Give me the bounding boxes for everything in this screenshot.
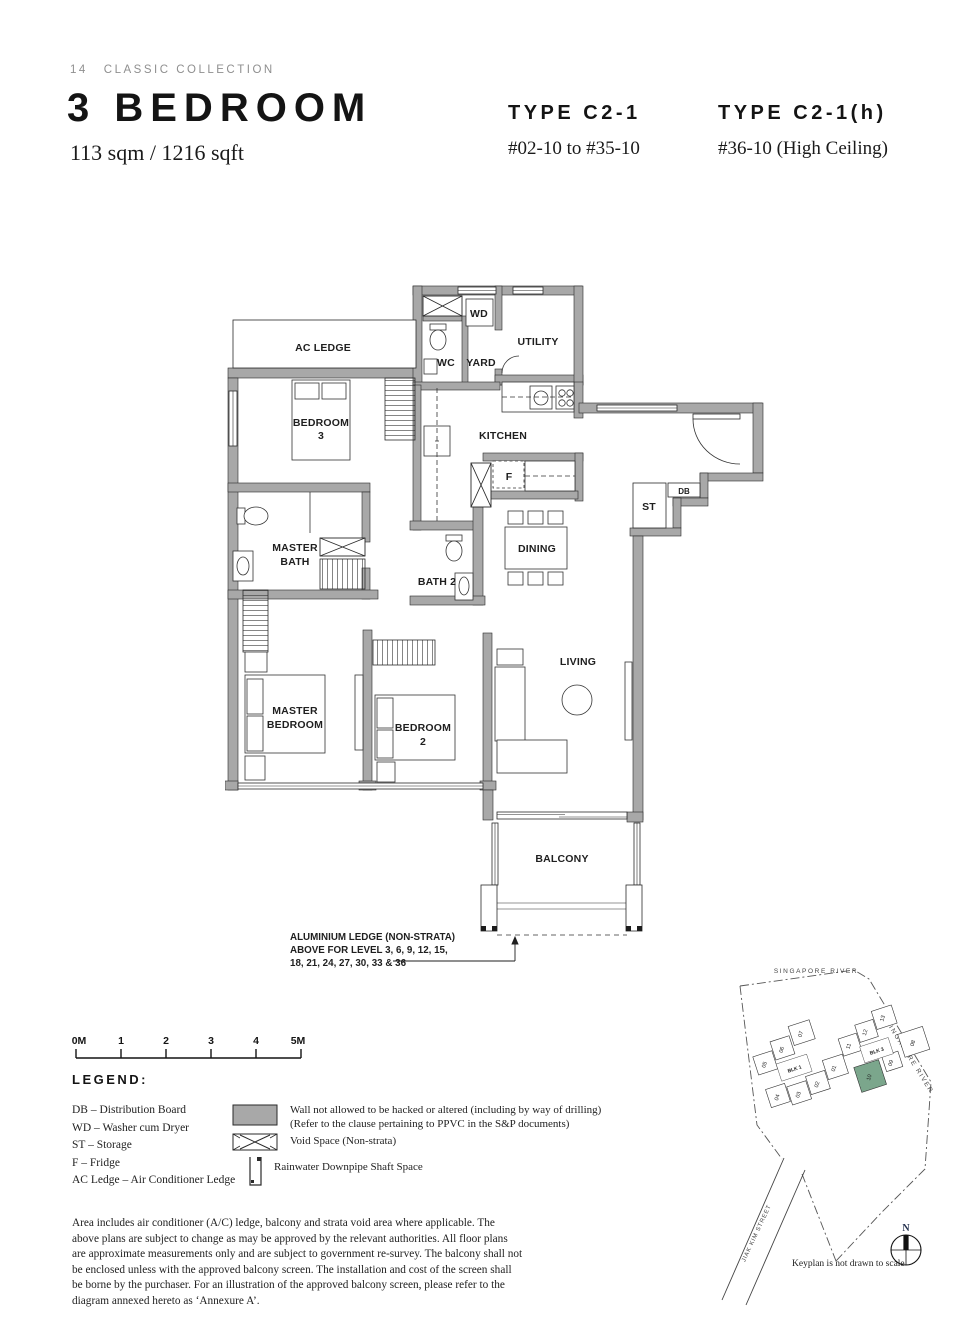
coffee-table — [562, 685, 592, 715]
legend-abbr-acledge: AC Ledge – Air Conditioner Ledge — [72, 1172, 235, 1189]
type-2-name: TYPE C2-1(h) — [718, 102, 887, 125]
void-space-text: Void Space (Non-strata) — [290, 1135, 396, 1149]
legend-rainwater-downpipe: Rainwater Downpipe Shaft Space — [248, 1153, 423, 1187]
singapore-river-label-top: SINGAPORE RIVER — [774, 968, 858, 975]
label-master-bedroom-2: BEDROOM — [267, 719, 323, 731]
jiak-kim-street-road — [722, 1158, 805, 1305]
aluminium-ledge-note-2: ABOVE FOR LEVEL 3, 6, 9, 12, 15, — [290, 945, 448, 956]
type-1-name: TYPE C2-1 — [508, 102, 641, 125]
void-space-swatch — [232, 1133, 278, 1151]
scale-tick-2: 2 — [163, 1035, 169, 1047]
tv-console — [625, 662, 632, 740]
aluminium-ledge-note-1: ALUMINIUM LEDGE (NON-STRATA) — [290, 932, 455, 943]
label-bedroom2-2: 2 — [420, 736, 426, 748]
sofa — [495, 667, 525, 741]
label-bedroom2-1: BEDROOM — [395, 722, 451, 734]
disclaimer-text: Area includes air conditioner (A/C) ledg… — [72, 1216, 524, 1309]
legend-abbr-f: F – Fridge — [72, 1155, 235, 1172]
scale-tick-1: 1 — [118, 1035, 124, 1047]
rainwater-downpipe-swatch — [248, 1153, 264, 1187]
restricted-wall-text-1: Wall not allowed to be hacked or altered… — [290, 1104, 601, 1118]
compass-north-label: N — [902, 1223, 910, 1234]
scale-tick-3: 3 — [208, 1035, 214, 1047]
north-needle — [903, 1235, 908, 1250]
label-living: LIVING — [560, 656, 596, 668]
legend-void-space: Void Space (Non-strata) — [232, 1133, 396, 1151]
legend-restricted-wall: Wall not allowed to be hacked or altered… — [232, 1104, 601, 1131]
restricted-wall-text-2: (Refer to the clause pertaining to PPVC … — [290, 1118, 601, 1132]
label-dining: DINING — [518, 543, 556, 555]
aluminium-ledge-note-3: 18, 21, 24, 27, 30, 33 & 36 — [290, 958, 407, 969]
label-utility: UTILITY — [517, 336, 558, 348]
label-bedroom3-2: 3 — [318, 430, 324, 442]
unit-area: 113 sqm / 1216 sqft — [70, 140, 244, 166]
label-master-bedroom-1: MASTER — [272, 705, 318, 717]
label-fridge: F — [506, 471, 513, 483]
scale-tick-5: 5M — [291, 1035, 306, 1047]
label-wd: WD — [470, 308, 488, 320]
label-bath2: BATH 2 — [418, 576, 456, 588]
label-st: ST — [642, 501, 656, 513]
restricted-wall-swatch — [232, 1104, 278, 1126]
collection-label: CLASSIC COLLECTION — [104, 64, 275, 76]
balcony-pillar-feet — [481, 926, 642, 931]
label-yard: YARD — [466, 357, 496, 369]
page-title: 3 BEDROOM — [67, 86, 372, 131]
label-master-bath-2: BATH — [280, 556, 309, 568]
label-wc: WC — [437, 357, 455, 369]
rainwater-downpipe-text: Rainwater Downpipe Shaft Space — [274, 1161, 423, 1175]
label-balcony: BALCONY — [535, 853, 588, 865]
legend-abbr-wd: WD – Washer cum Dryer — [72, 1120, 235, 1137]
label-kitchen: KITCHEN — [479, 430, 527, 442]
page-number: 14 — [70, 64, 88, 76]
legend-title: LEGEND: — [72, 1072, 148, 1087]
keyplan: SINGAPORE RIVER SINGAPORE RIVER JIAK KIM… — [712, 962, 970, 1307]
legend-abbr-db: DB – Distribution Board — [72, 1102, 235, 1119]
keyplan-boundary — [740, 970, 931, 1261]
page-header: 14 CLASSIC COLLECTION — [70, 64, 275, 76]
scale-bar: 0M 1 2 3 4 5M — [70, 1032, 310, 1064]
label-db: DB — [678, 487, 690, 496]
label-bedroom3-1: BEDROOM — [293, 417, 349, 429]
legend-abbreviations: DB – Distribution Board WD – Washer cum … — [72, 1102, 235, 1190]
keyplan-block-1: 05 06 07 01 02 03 04 BLK 1 — [747, 1013, 852, 1112]
type-1-units: #02-10 to #35-10 — [508, 138, 640, 160]
floorplan-page: 14 CLASSIC COLLECTION 3 BEDROOM 113 sqm … — [0, 0, 980, 1332]
label-master-bath-1: MASTER — [272, 542, 318, 554]
legend-abbr-st: ST – Storage — [72, 1137, 235, 1154]
label-ac-ledge: AC LEDGE — [295, 342, 351, 354]
keyplan-caption: Keyplan is not drawn to scale — [792, 1259, 905, 1269]
scale-tick-4: 4 — [253, 1035, 259, 1047]
floor-plan: AC LEDGE WD WC YARD UTILITY KITCHEN BEDR… — [225, 283, 770, 973]
scale-tick-0: 0M — [72, 1035, 87, 1047]
type-2-units: #36-10 (High Ceiling) — [718, 138, 888, 160]
